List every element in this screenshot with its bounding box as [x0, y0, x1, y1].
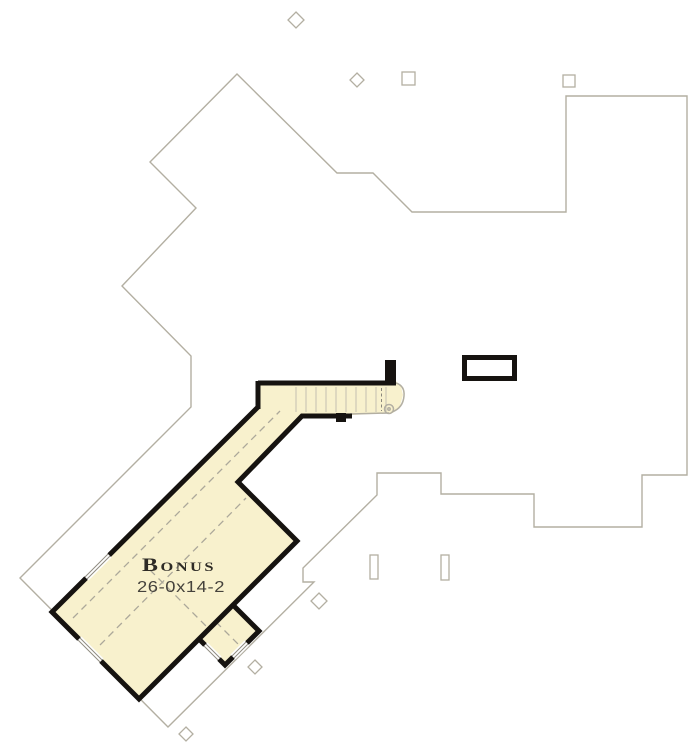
chimney — [465, 358, 515, 379]
room-dimensions-label: 26-0x14-2 — [137, 579, 225, 596]
diamond-vent-icon — [288, 12, 304, 28]
diamond-vent-icon — [311, 593, 327, 609]
square-vent-icon — [563, 75, 575, 87]
ridge-vent-icon — [441, 555, 449, 580]
floor-plan: Bonus 26-0x14-2 — [0, 0, 700, 748]
wall-stub — [336, 413, 346, 422]
bonus-room: Bonus 26-0x14-2 — [52, 360, 404, 699]
room-name-label: Bonus — [142, 555, 216, 576]
ridge-vent-icon — [370, 555, 378, 579]
floor-plan-drawing: Bonus 26-0x14-2 — [0, 0, 700, 748]
diamond-vent-icon — [248, 660, 262, 674]
stair-bottom-edge — [350, 413, 389, 414]
diamond-vent-icon — [179, 727, 193, 741]
diamond-vent-icon — [350, 73, 364, 87]
bonus-room-floor — [52, 381, 403, 699]
wall-stub — [385, 360, 396, 384]
square-vent-icon — [402, 72, 415, 85]
